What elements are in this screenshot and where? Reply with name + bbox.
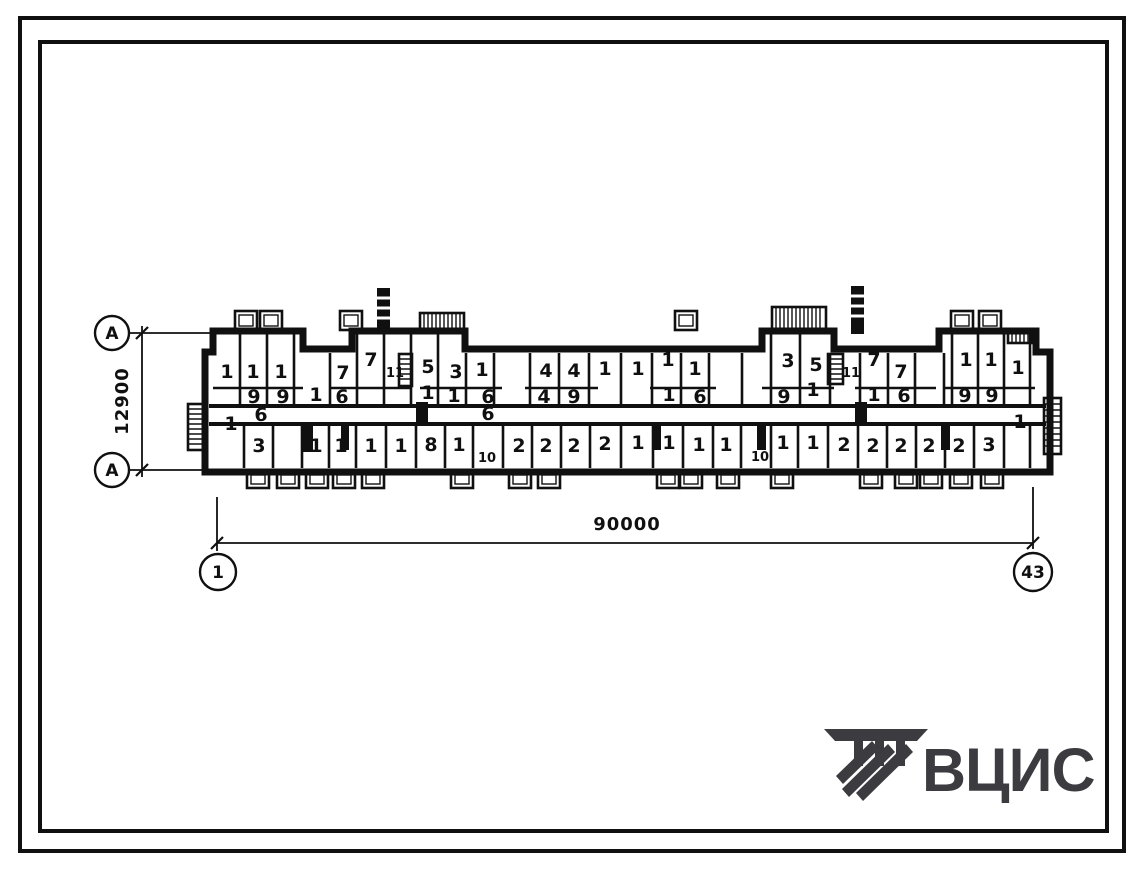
room-number: 1 (984, 349, 997, 371)
balcony-stub-inner (899, 475, 913, 484)
balcony-stub (340, 311, 362, 330)
room-number: 2 (922, 435, 935, 457)
room-number: 1 (662, 384, 675, 406)
room-number: 1 (806, 432, 819, 454)
room-number: 9 (567, 386, 580, 408)
room-number: 2 (894, 435, 907, 457)
vcis-logo-text: ВЦИС (922, 736, 1095, 804)
room-number: 1 (452, 434, 465, 456)
axis-label-A-bottom: А (105, 461, 119, 481)
top-porches (235, 311, 1001, 330)
room-number: 6 (254, 404, 267, 426)
room-number: 1 (334, 435, 347, 457)
vertical-dim-text: 12900 (112, 367, 133, 435)
room-number: 1 (1011, 357, 1024, 379)
room-number: 3 (449, 361, 462, 383)
room-number: 1 (719, 434, 732, 456)
axis-label-1: 1 (212, 563, 224, 583)
room-number: 2 (512, 435, 525, 457)
room-number: 10 (751, 450, 769, 465)
balcony-stub-inner (985, 475, 999, 484)
room-number: 1 (246, 361, 259, 383)
room-number: 6 (335, 386, 348, 408)
room-number: 1 (309, 384, 322, 406)
room-number: 1 (364, 435, 377, 457)
balcony-stub-inner (679, 315, 693, 326)
room-number: 3 (252, 435, 265, 457)
balcony-stub-inner (366, 475, 380, 484)
room-number: 9 (958, 385, 971, 407)
room-number: 6 (693, 386, 706, 408)
balcony-stub-inner (661, 475, 675, 484)
balcony-stub-inner (251, 475, 265, 484)
room-number: 7 (364, 349, 377, 371)
balcony-stub (951, 311, 973, 330)
balcony-stub-inner (542, 475, 556, 484)
room-number: 4 (539, 360, 552, 382)
room-number: 8 (424, 434, 437, 456)
balcony-stub-inner (281, 475, 295, 484)
room-number: 1 (806, 379, 819, 401)
room-number: 5 (421, 356, 434, 378)
room-number: 10 (478, 451, 496, 466)
balcony-stub (979, 311, 1001, 330)
plan-canvas: 1117711531441111351177111996116116649169… (0, 0, 1139, 869)
balcony-stub-inner (310, 475, 324, 484)
room-number: 7 (336, 362, 349, 384)
vcis-logo: ВЦИС (824, 729, 1095, 804)
room-number: 4 (567, 360, 580, 382)
room-number: 1 (776, 432, 789, 454)
balcony-stub-inner (983, 315, 997, 326)
room-number: 1 (309, 435, 322, 457)
balcony-stub-inner (337, 475, 351, 484)
room-number: 7 (894, 361, 907, 383)
balcony-stub-inner (955, 315, 969, 326)
drawing-sheet: 1117711531441111351177111996116116649169… (0, 0, 1139, 869)
room-number: 1 (662, 432, 675, 454)
balcony-stub-inner (684, 475, 698, 484)
room-number: 1 (867, 384, 880, 406)
room-number: 1 (447, 385, 460, 407)
horizontal-dim-text: 90000 (593, 514, 661, 535)
room-number: 1 (598, 358, 611, 380)
balcony-stub-inner (924, 475, 938, 484)
room-number: 5 (809, 354, 822, 376)
axis-label-A-top: А (105, 324, 119, 344)
room-number: 1 (661, 349, 674, 371)
room-number: 1 (631, 432, 644, 454)
balcony-stub-inner (344, 315, 358, 326)
room-number: 1 (688, 358, 701, 380)
room-number: 2 (837, 434, 850, 456)
balcony-stub-inner (864, 475, 878, 484)
room-number: 9 (276, 386, 289, 408)
vcis-logo-mark (824, 729, 928, 801)
room-number: 1 (220, 361, 233, 383)
room-number: 1 (475, 359, 488, 381)
room-number: 9 (777, 386, 790, 408)
room-number: 1 (394, 435, 407, 457)
balcony-stub-inner (721, 475, 735, 484)
room-number: 9 (985, 385, 998, 407)
balcony-stub (260, 311, 282, 330)
room-number: 4 (537, 386, 550, 408)
balcony-stub-inner (264, 315, 278, 326)
room-number: 1 (631, 358, 644, 380)
room-number: 2 (866, 435, 879, 457)
room-number: 1 (421, 382, 434, 404)
room-number: 11 (386, 366, 404, 381)
room-number: 11 (842, 366, 860, 381)
balcony-stub (675, 311, 697, 330)
balcony-stub-inner (513, 475, 527, 484)
room-number: 3 (982, 434, 995, 456)
room-number: 3 (781, 350, 794, 372)
room-number: 2 (598, 433, 611, 455)
vent-stacks (377, 286, 864, 334)
balcony-stub-inner (775, 475, 789, 484)
room-number: 6 (897, 385, 910, 407)
balcony-stub-inner (455, 475, 469, 484)
room-number: 1 (959, 349, 972, 371)
balcony-stub-inner (954, 475, 968, 484)
room-number: 6 (481, 403, 494, 425)
room-number: 2 (539, 435, 552, 457)
room-number: 1 (1013, 411, 1026, 433)
room-number: 2 (567, 435, 580, 457)
room-number: 1 (224, 413, 237, 435)
room-number: 7 (867, 349, 880, 371)
room-number: 2 (952, 435, 965, 457)
room-number: 1 (692, 434, 705, 456)
room-number: 1 (274, 361, 287, 383)
balcony-stub-inner (239, 315, 253, 326)
axis-label-43: 43 (1021, 563, 1045, 583)
vertical-dim-line (129, 326, 212, 477)
floor-plan: 1117711531441111351177111996116116649169… (188, 286, 1061, 488)
